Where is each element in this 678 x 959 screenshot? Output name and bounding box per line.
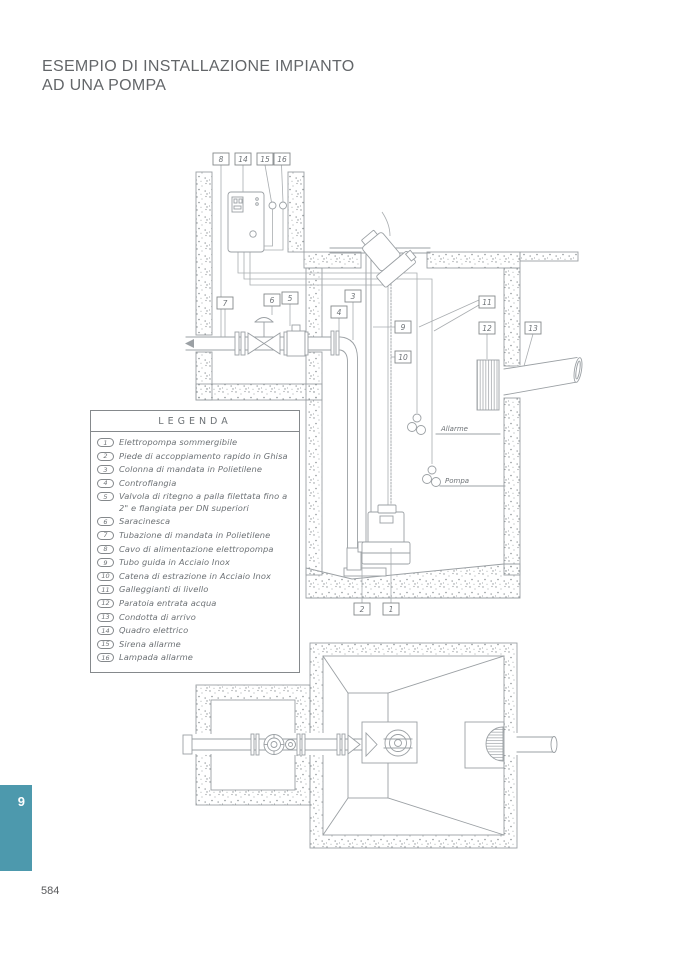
callout-15: 15 xyxy=(260,155,270,164)
flange-pair xyxy=(235,332,245,355)
legend-item-number: 7 xyxy=(97,531,114,540)
legend-item: 8Cavo di alimentazione elettropompa xyxy=(97,544,293,555)
legend-item-number: 16 xyxy=(97,653,114,662)
legend-title: LEGENDA xyxy=(91,411,299,432)
legend-item-number: 11 xyxy=(97,585,114,594)
legend-item: 14Quadro elettrico xyxy=(97,625,293,636)
submersible-pump xyxy=(362,505,410,564)
legend-item-text: Quadro elettrico xyxy=(119,625,188,636)
section-tab: 9 xyxy=(0,785,32,871)
inlet-sluice-gate xyxy=(477,360,499,410)
legend-item-text: Controflangia xyxy=(119,478,176,489)
legend-item-number: 12 xyxy=(97,599,114,608)
legend-item: 9Tubo guida in Acciaio Inox xyxy=(97,557,293,568)
legend-item-number: 6 xyxy=(97,517,114,526)
legend-item: 10Catena di estrazione in Acciaio Inox xyxy=(97,571,293,582)
plan-outlet-pipe xyxy=(517,737,557,753)
plan-check-valve xyxy=(286,740,296,750)
callout-1: 1 xyxy=(389,605,394,614)
legend-item-number: 14 xyxy=(97,626,114,635)
page-number: 584 xyxy=(41,885,59,897)
legend-item: 4Controflangia xyxy=(97,478,293,489)
legend-item: 16Lampada allarme xyxy=(97,652,293,663)
legend-item-number: 13 xyxy=(97,613,114,622)
legend-item: 5Valvola di ritegno a palla filettata fi… xyxy=(97,491,293,514)
legend-item-number: 15 xyxy=(97,640,114,649)
legend-item-text: Tubazione di mandata in Polietilene xyxy=(119,530,270,541)
pump-float-label: Pompa xyxy=(445,477,469,485)
check-valve xyxy=(284,325,308,356)
legend-item-number: 5 xyxy=(97,492,114,501)
callout-8: 8 xyxy=(219,155,224,164)
riser-column xyxy=(340,337,358,548)
alarm-float-label: Allarme xyxy=(440,425,468,433)
legend-item-number: 4 xyxy=(97,479,114,488)
legend-item-text: Lampada allarme xyxy=(119,652,193,663)
callout-10: 10 xyxy=(398,353,408,362)
legend-item: 11Galleggianti di livello xyxy=(97,584,293,595)
callout-12: 12 xyxy=(482,324,492,333)
legend-item-text: Sirena allarme xyxy=(119,639,181,650)
callout-9: 9 xyxy=(401,323,406,332)
callout-3: 3 xyxy=(351,292,356,301)
callout-11: 11 xyxy=(482,298,492,307)
legend-item-text: Tubo guida in Acciaio Inox xyxy=(119,557,230,568)
legend-item: 7Tubazione di mandata in Polietilene xyxy=(97,530,293,541)
legend-item-number: 1 xyxy=(97,438,114,447)
legend-item: 6Saracinesca xyxy=(97,516,293,527)
legend-item-number: 9 xyxy=(97,558,114,567)
legend-item-text: Cavo di alimentazione elettropompa xyxy=(119,544,274,555)
plan-gate-valve xyxy=(264,735,284,755)
legend-item: 3Colonna di mandata in Polietilene xyxy=(97,464,293,475)
callout-7: 7 xyxy=(223,299,228,308)
alarm-lamp-icon xyxy=(264,202,287,250)
pump-being-lowered xyxy=(352,212,418,288)
callout-14: 14 xyxy=(238,155,248,164)
gate-valve xyxy=(248,318,280,355)
callout-2: 2 xyxy=(360,605,365,614)
callout-6: 6 xyxy=(270,296,275,305)
legend-item-number: 3 xyxy=(97,465,114,474)
callout-16: 16 xyxy=(277,155,287,164)
legend-item-text: Colonna di mandata in Polietilene xyxy=(119,464,262,475)
section-tab-number: 9 xyxy=(18,794,25,809)
legend-item-text: Galleggianti di livello xyxy=(119,584,208,595)
legend: LEGENDA 1Elettropompa sommergibile 2Pied… xyxy=(90,410,300,673)
legend-item-text: Elettropompa sommergibile xyxy=(119,437,237,448)
legend-item-number: 8 xyxy=(97,545,114,554)
legend-item-text: Saracinesca xyxy=(119,516,170,527)
counterflange xyxy=(331,331,339,355)
legend-item-text: Valvola di ritegno a palla filettata fin… xyxy=(119,491,293,514)
guide-rails xyxy=(362,252,375,550)
legend-items: 1Elettropompa sommergibile 2Piede di acc… xyxy=(91,432,299,670)
legend-item: 12Paratoia entrata acqua xyxy=(97,598,293,609)
legend-item-text: Catena di estrazione in Acciaio Inox xyxy=(119,571,271,582)
alarm-siren-icon xyxy=(264,202,276,246)
legend-item-text: Piede di accoppiamento rapido in Ghisa xyxy=(119,451,288,462)
legend-item: 2Piede di accoppiamento rapido in Ghisa xyxy=(97,451,293,462)
callout-4: 4 xyxy=(337,308,342,317)
legend-item: 1Elettropompa sommergibile xyxy=(97,437,293,448)
legend-item-number: 2 xyxy=(97,452,114,461)
legend-item-text: Paratoia entrata acqua xyxy=(119,598,216,609)
catalog-page: ESEMPIO DI INSTALLAZIONE IMPIANTO AD UNA… xyxy=(0,0,678,959)
callout-13: 13 xyxy=(528,324,538,333)
legend-item-number: 10 xyxy=(97,572,114,581)
callout-5: 5 xyxy=(288,294,293,303)
legend-item: 15Sirena allarme xyxy=(97,639,293,650)
legend-item: 13Condotta di arrivo xyxy=(97,612,293,623)
control-panel xyxy=(228,192,264,252)
plan-view xyxy=(183,643,557,848)
legend-item-text: Condotta di arrivo xyxy=(119,612,196,623)
